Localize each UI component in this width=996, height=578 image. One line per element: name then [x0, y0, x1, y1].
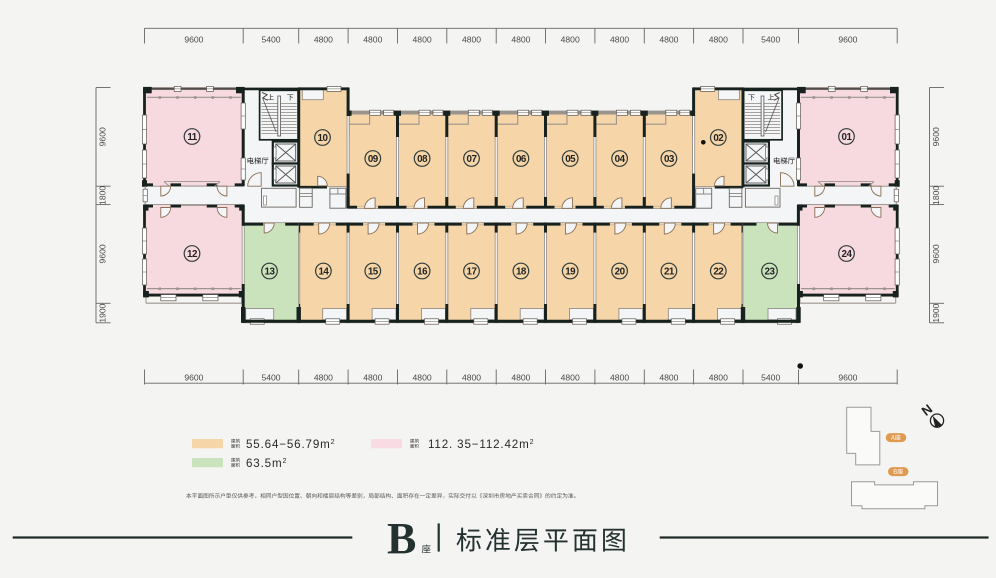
- svg-text:4800: 4800: [363, 373, 382, 383]
- svg-text:112. 35−112.42m2: 112. 35−112.42m2: [428, 438, 534, 451]
- svg-text:4800: 4800: [413, 373, 432, 383]
- svg-text:5400: 5400: [761, 373, 780, 383]
- svg-text:9600: 9600: [184, 35, 203, 45]
- svg-text:1900: 1900: [931, 303, 941, 322]
- svg-text:22: 22: [713, 267, 724, 278]
- svg-text:05: 05: [565, 154, 576, 165]
- svg-text:4800: 4800: [561, 35, 580, 45]
- svg-text:4800: 4800: [610, 373, 629, 383]
- svg-text:9600: 9600: [184, 373, 203, 383]
- svg-text:18: 18: [516, 267, 527, 278]
- svg-text:55.64−56.79m2: 55.64−56.79m2: [246, 438, 335, 451]
- svg-text:1800: 1800: [931, 186, 941, 205]
- svg-text:9600: 9600: [838, 35, 857, 45]
- svg-text:11: 11: [187, 132, 197, 143]
- svg-text:4800: 4800: [413, 35, 432, 45]
- svg-text:13: 13: [265, 267, 276, 278]
- svg-text:20: 20: [615, 267, 626, 278]
- svg-text:4800: 4800: [511, 35, 530, 45]
- svg-text:5400: 5400: [761, 35, 780, 45]
- svg-text:9600: 9600: [98, 244, 108, 263]
- svg-text:16: 16: [417, 267, 428, 278]
- svg-text:9600: 9600: [98, 127, 108, 146]
- svg-text:4800: 4800: [314, 35, 333, 45]
- svg-text:17: 17: [467, 267, 478, 278]
- svg-text:14: 14: [318, 267, 329, 278]
- svg-text:10: 10: [318, 133, 329, 144]
- svg-text:21: 21: [664, 267, 675, 278]
- svg-text:12: 12: [187, 249, 198, 260]
- svg-text:4800: 4800: [363, 35, 382, 45]
- svg-text:07: 07: [467, 154, 478, 165]
- svg-text:9600: 9600: [838, 373, 857, 383]
- svg-text:4800: 4800: [709, 373, 728, 383]
- svg-text:1900: 1900: [98, 303, 108, 322]
- svg-text:02: 02: [713, 133, 724, 144]
- svg-text:4800: 4800: [462, 35, 481, 45]
- svg-text:09: 09: [368, 154, 379, 165]
- svg-text:1800: 1800: [98, 186, 108, 205]
- svg-text:19: 19: [565, 267, 576, 278]
- svg-text:4800: 4800: [659, 373, 678, 383]
- svg-text:08: 08: [417, 154, 428, 165]
- svg-text:5400: 5400: [261, 373, 280, 383]
- svg-text:9600: 9600: [931, 244, 941, 263]
- svg-text:4800: 4800: [561, 373, 580, 383]
- svg-text:24: 24: [842, 249, 853, 260]
- svg-text:63.5m2: 63.5m2: [246, 457, 287, 470]
- svg-text:4800: 4800: [659, 35, 678, 45]
- svg-text:23: 23: [765, 267, 776, 278]
- svg-text:9600: 9600: [931, 127, 941, 146]
- svg-text:04: 04: [615, 154, 626, 165]
- svg-text:15: 15: [368, 267, 379, 278]
- svg-text:5400: 5400: [261, 35, 280, 45]
- svg-text:01: 01: [842, 132, 853, 143]
- svg-text:4800: 4800: [314, 373, 333, 383]
- svg-text:4800: 4800: [610, 35, 629, 45]
- svg-text:B: B: [387, 514, 416, 563]
- svg-text:4800: 4800: [709, 35, 728, 45]
- svg-text:06: 06: [516, 154, 527, 165]
- svg-text:03: 03: [664, 154, 675, 165]
- svg-text:4800: 4800: [511, 373, 530, 383]
- svg-text:4800: 4800: [462, 373, 481, 383]
